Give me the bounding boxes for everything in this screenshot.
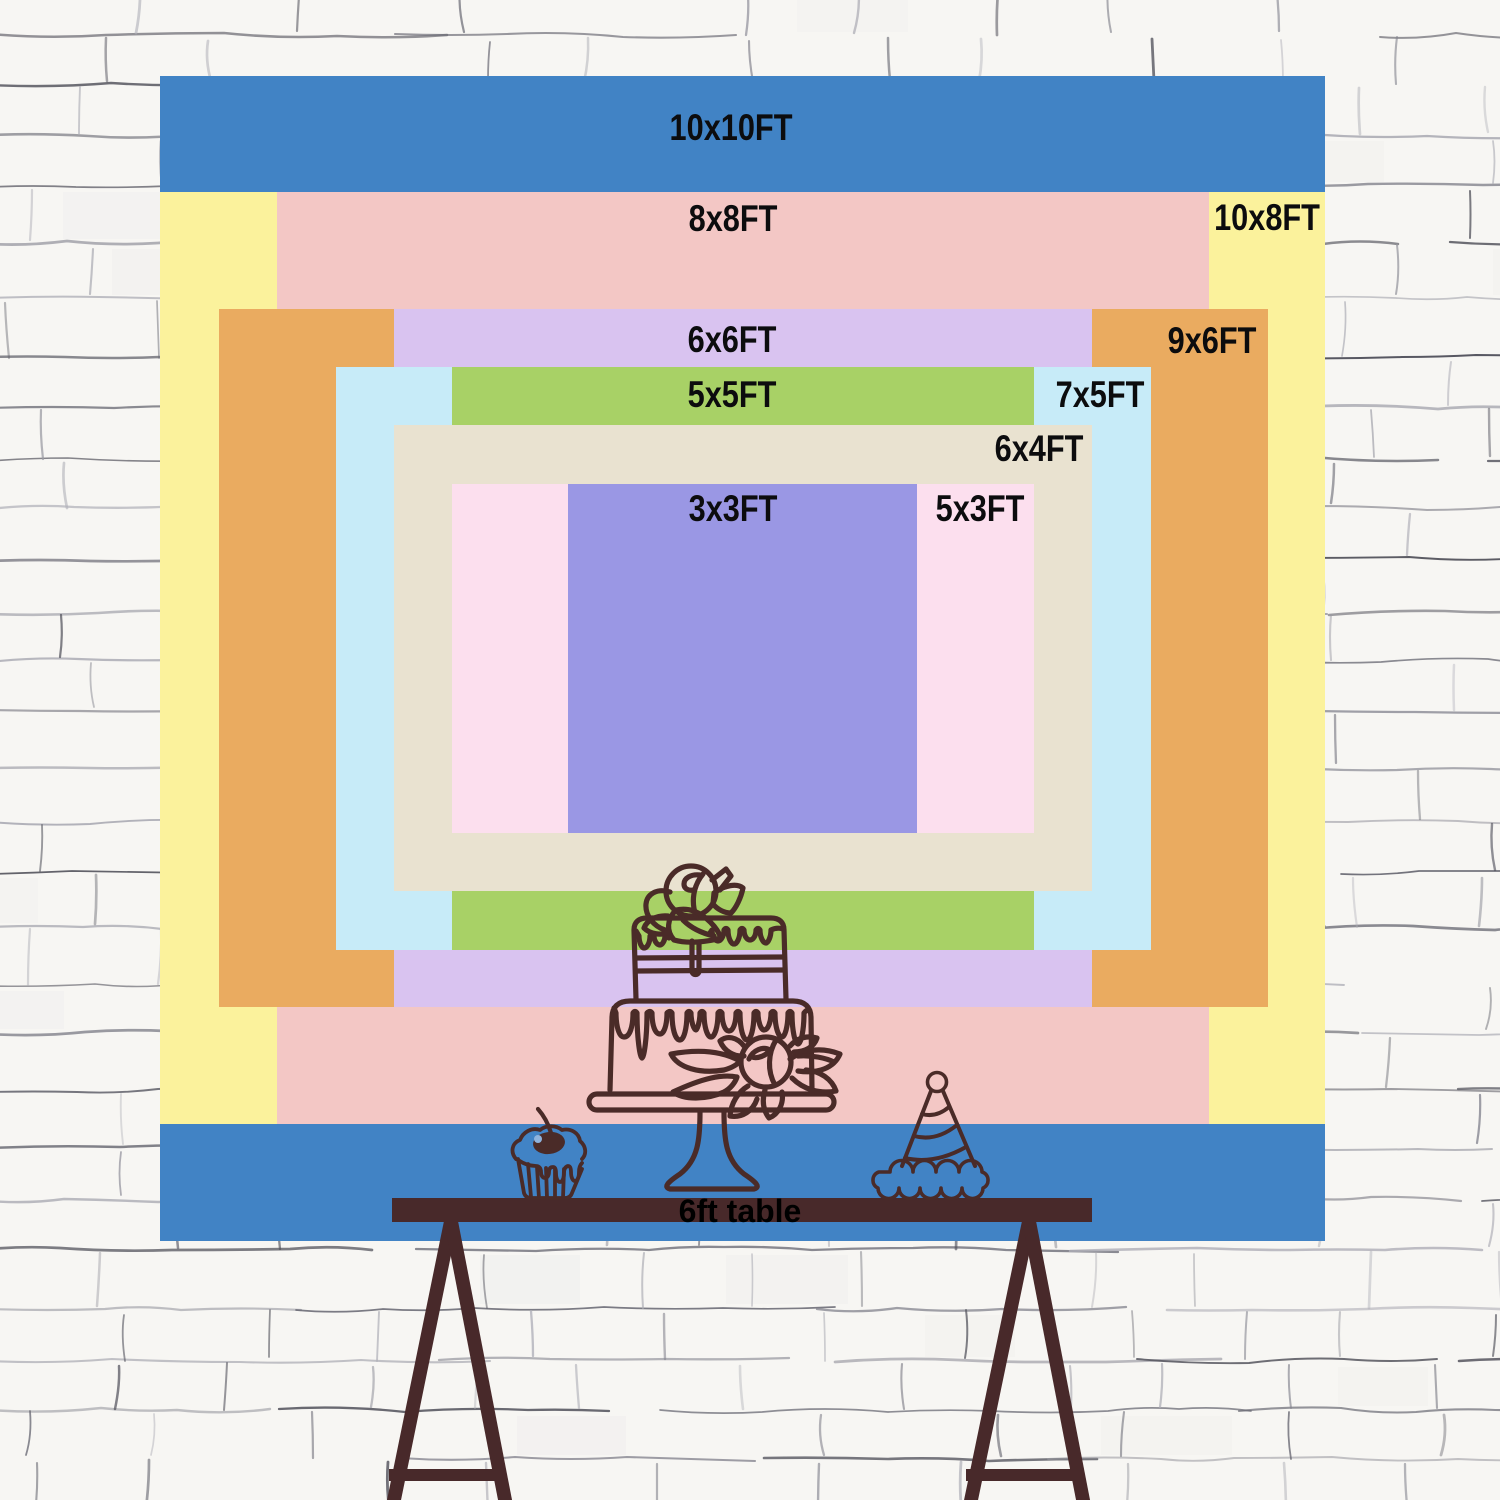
svg-text:6x6FT: 6x6FT — [688, 319, 777, 360]
svg-text:7x5FT: 7x5FT — [1056, 374, 1145, 415]
svg-text:6ft table: 6ft table — [679, 1193, 802, 1229]
svg-text:9x6FT: 9x6FT — [1168, 320, 1257, 361]
svg-text:5x3FT: 5x3FT — [936, 488, 1025, 529]
svg-text:8x8FT: 8x8FT — [689, 198, 778, 239]
svg-text:5x5FT: 5x5FT — [688, 374, 777, 415]
svg-text:6x4FT: 6x4FT — [995, 428, 1084, 469]
svg-text:3x3FT: 3x3FT — [689, 488, 778, 529]
svg-text:10x10FT: 10x10FT — [670, 107, 793, 148]
svg-text:10x8FT: 10x8FT — [1214, 197, 1320, 238]
